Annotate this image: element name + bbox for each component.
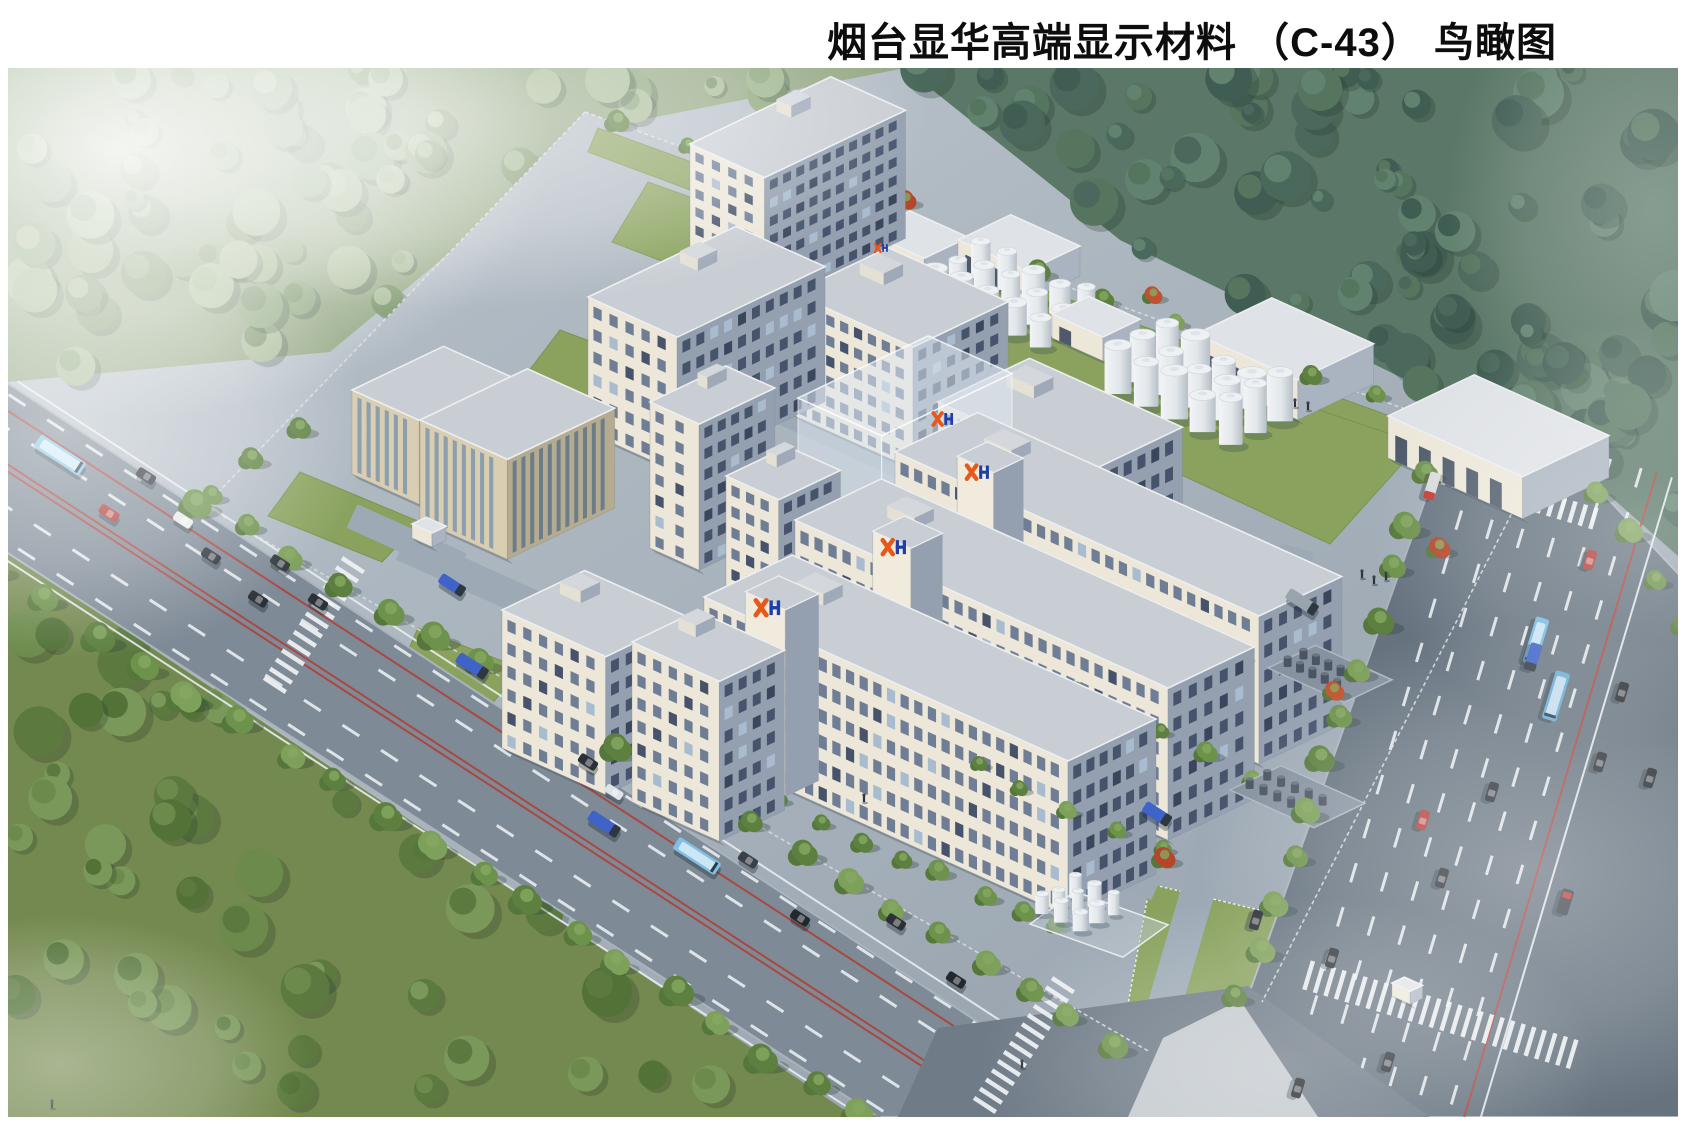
forest-tree (447, 1039, 472, 1064)
glass-strip (462, 444, 466, 537)
storage-tank (1219, 397, 1243, 445)
page-title: 烟台显华高端显示材料 （C-43） 鸟瞰图 (827, 10, 1557, 68)
person-head (1360, 569, 1363, 572)
forest-tree (1003, 104, 1028, 129)
tree-highlight (335, 576, 346, 587)
tree-highlight (287, 747, 298, 758)
glass-strip (480, 452, 484, 545)
tank-cap (1113, 341, 1122, 345)
forest-tree (1290, 293, 1302, 305)
forest-tree (970, 99, 987, 116)
forest-tree (410, 981, 428, 999)
glass-strip (403, 418, 407, 495)
glass-strip (453, 440, 457, 533)
forest-tree (1127, 85, 1142, 100)
tank-cap (1033, 289, 1040, 292)
forest-tree (1108, 125, 1121, 138)
tree-highlight (671, 979, 685, 993)
tree-highlight (934, 862, 943, 871)
logo-h-bar (882, 247, 888, 249)
forest-tree (571, 1059, 590, 1078)
forest-tree (416, 1077, 433, 1094)
forest-tree (1405, 368, 1425, 388)
tree-highlight (233, 709, 246, 722)
person-body (863, 796, 865, 802)
tree-highlight (574, 924, 585, 935)
tree-highlight (520, 889, 533, 902)
equipment-top (1284, 655, 1292, 658)
tree-highlight (852, 1102, 865, 1115)
title-bar: 烟台显华高端显示材料 （C-43） 鸟瞰图 (0, 0, 1686, 68)
forest-tree (334, 791, 348, 805)
glass-strip (385, 410, 389, 487)
glass-strip (601, 418, 605, 511)
tank-cap (984, 287, 992, 291)
tank-cap (1078, 909, 1083, 911)
tank-cap (1170, 367, 1180, 371)
tank-cap (1276, 369, 1285, 373)
glass-strip (583, 426, 587, 519)
person-body (1361, 572, 1363, 578)
logo-h-bar (979, 471, 989, 474)
tank-cap (1112, 890, 1116, 892)
tank-cap (1163, 320, 1171, 324)
tree-highlight (611, 737, 624, 750)
rendering-canvas (8, 68, 1678, 1117)
glass-strip (394, 414, 398, 491)
equipment-top (1296, 661, 1304, 664)
tank-cap (955, 257, 961, 260)
tree-highlight (1308, 367, 1317, 376)
logo-h-bar (944, 418, 953, 421)
tank-cap (957, 273, 965, 277)
tank-cap (1166, 348, 1175, 352)
forest-tree (449, 888, 476, 915)
person-body (1373, 578, 1375, 584)
tree-highlight (611, 952, 623, 964)
tree-highlight (480, 865, 491, 876)
tree-highlight (385, 602, 397, 614)
tree-highlight (426, 834, 439, 847)
person-head (1293, 398, 1296, 401)
glass-strip (539, 447, 543, 540)
tree-highlight (712, 1014, 723, 1025)
tree-highlight (381, 806, 394, 819)
tank-cap (981, 262, 989, 265)
page: 烟台显华高端显示材料 （C-43） 鸟瞰图 (0, 0, 1686, 1125)
tree-highlight (138, 655, 151, 668)
forest-tree (1340, 279, 1359, 298)
storage-tank (1244, 383, 1266, 433)
tree-highlight (429, 625, 442, 638)
tree-highlight (1373, 387, 1381, 395)
forest-tree (1399, 277, 1412, 290)
forest-tree (157, 779, 178, 800)
forest-tree (641, 1063, 657, 1079)
forest-tree (1174, 137, 1201, 164)
forest-tree (31, 779, 55, 803)
tank-cap (1092, 881, 1097, 883)
forest-tree (152, 802, 175, 825)
tank-cap (1029, 266, 1037, 270)
forest-tree (1228, 277, 1251, 300)
person-shadow (1293, 407, 1299, 409)
storage-tank (1054, 900, 1068, 922)
tree-highlight (1016, 782, 1023, 789)
tree-highlight (179, 685, 193, 699)
forest-tree (1059, 132, 1081, 154)
aerial-rendering (8, 68, 1678, 1117)
tank-cap (977, 238, 984, 241)
glass-strip (489, 456, 493, 549)
tree-highlight (1064, 803, 1072, 811)
tree-highlight (1020, 904, 1029, 913)
tree-highlight (935, 924, 945, 934)
forest-tree (223, 906, 250, 933)
glass-strip (513, 460, 517, 553)
forest-tree (1376, 170, 1388, 182)
glass-strip (557, 439, 561, 532)
glass-strip (521, 456, 525, 549)
tank-cap (1076, 888, 1080, 890)
tank-cap (1247, 369, 1257, 374)
glass-strip (574, 431, 578, 524)
forest-tree (1438, 297, 1457, 316)
tree-highlight (1114, 824, 1122, 832)
forest-tree (85, 859, 101, 875)
glass-strip (471, 448, 475, 541)
tank-cap (1040, 891, 1045, 893)
forest-tree (179, 879, 197, 897)
tree-highlight (1158, 725, 1165, 732)
tank-cap (1223, 376, 1232, 380)
equipment-top (1312, 653, 1320, 656)
forest-tree (1301, 70, 1326, 95)
forest-tree (695, 1068, 716, 1089)
glass-strip (444, 436, 448, 529)
forest-tree (71, 696, 90, 715)
tank-cap (1252, 380, 1260, 384)
person-shadow (1360, 578, 1366, 580)
tree-highlight (813, 1074, 824, 1085)
storage-tank (1161, 370, 1188, 419)
tree-highlight (799, 843, 811, 855)
person-shadow (1372, 584, 1378, 586)
tank-cap (1138, 331, 1147, 335)
tree-highlight (1149, 288, 1157, 296)
glass-strip (548, 443, 552, 536)
tree-highlight (756, 1047, 770, 1061)
forest-tree (1237, 175, 1261, 199)
equipment-top (1300, 648, 1308, 651)
glass-strip (530, 452, 534, 545)
tree-highlight (976, 758, 983, 765)
forest-tree (1074, 181, 1101, 208)
forest-tree (1388, 336, 1413, 361)
tank-cap (1004, 248, 1011, 251)
person-head (1372, 575, 1375, 578)
logo-h-bar (769, 606, 779, 609)
storage-tank (1108, 892, 1119, 915)
forest-tree (151, 693, 166, 708)
glass-strip (592, 422, 596, 515)
forest-tree (46, 763, 60, 777)
tank-cap (1010, 299, 1019, 303)
forest-tree (1359, 69, 1371, 81)
building-mid-tower (632, 608, 784, 846)
tree-highlight (887, 902, 897, 912)
tank-cap (1007, 271, 1014, 274)
tank-cap (1195, 365, 1203, 369)
tank-shadow (1110, 915, 1124, 920)
forest-tree (1128, 162, 1151, 185)
tree-highlight (1374, 611, 1386, 623)
person-shadow (1306, 410, 1312, 412)
forest-tree (1161, 168, 1174, 181)
tree-highlight (983, 889, 992, 898)
forest-tree (1404, 92, 1420, 108)
logo-h-bar (896, 546, 906, 549)
forest-tree (238, 852, 265, 879)
equipment-top (1324, 659, 1332, 662)
glass-strip (425, 427, 429, 520)
tank-cap (1219, 357, 1227, 361)
tank-cap (1073, 872, 1077, 874)
tree-highlight (1160, 850, 1170, 860)
tank-cap (1059, 898, 1064, 900)
forest-tree (1401, 198, 1422, 219)
tank-cap (1056, 280, 1064, 283)
stair-tower (785, 594, 818, 797)
glass-strip (376, 406, 380, 483)
tree-highlight (475, 651, 487, 663)
tree-highlight (858, 835, 867, 844)
tank-cap (1056, 887, 1061, 889)
person-head (862, 793, 865, 796)
tree-highlight (819, 816, 826, 823)
tree-highlight (747, 813, 757, 823)
forest-tree (284, 968, 311, 995)
storage-tank (1267, 372, 1293, 421)
tank-cap (1083, 284, 1089, 287)
forest-tree (8, 826, 23, 841)
storage-tank (1105, 345, 1132, 394)
tank-cap (1198, 391, 1207, 395)
tree-highlight (899, 853, 907, 861)
tree-highlight (845, 871, 857, 883)
forest-tree (88, 827, 111, 850)
tank-cap (1190, 331, 1200, 336)
person-body (1307, 404, 1309, 410)
storage-tank (1134, 362, 1159, 407)
person-shadow (862, 802, 868, 804)
tree-highlight (329, 770, 339, 780)
tree-highlight (982, 954, 993, 965)
forest-tree (17, 710, 45, 738)
glass-strip (435, 432, 439, 525)
tank-cap (1142, 358, 1151, 362)
tree-highlight (1099, 291, 1108, 300)
forest-tree (1264, 155, 1291, 182)
tank-cap (1094, 900, 1100, 903)
tree-highlight (1202, 744, 1211, 753)
person-body (1294, 401, 1296, 407)
tank-cap (1227, 394, 1235, 398)
person-head (1306, 401, 1309, 404)
forest-tree (1404, 233, 1417, 246)
glass-strip (565, 435, 569, 528)
forest-tree (1133, 239, 1145, 251)
tank-cap (1037, 314, 1045, 317)
equipment-top (1308, 667, 1316, 670)
